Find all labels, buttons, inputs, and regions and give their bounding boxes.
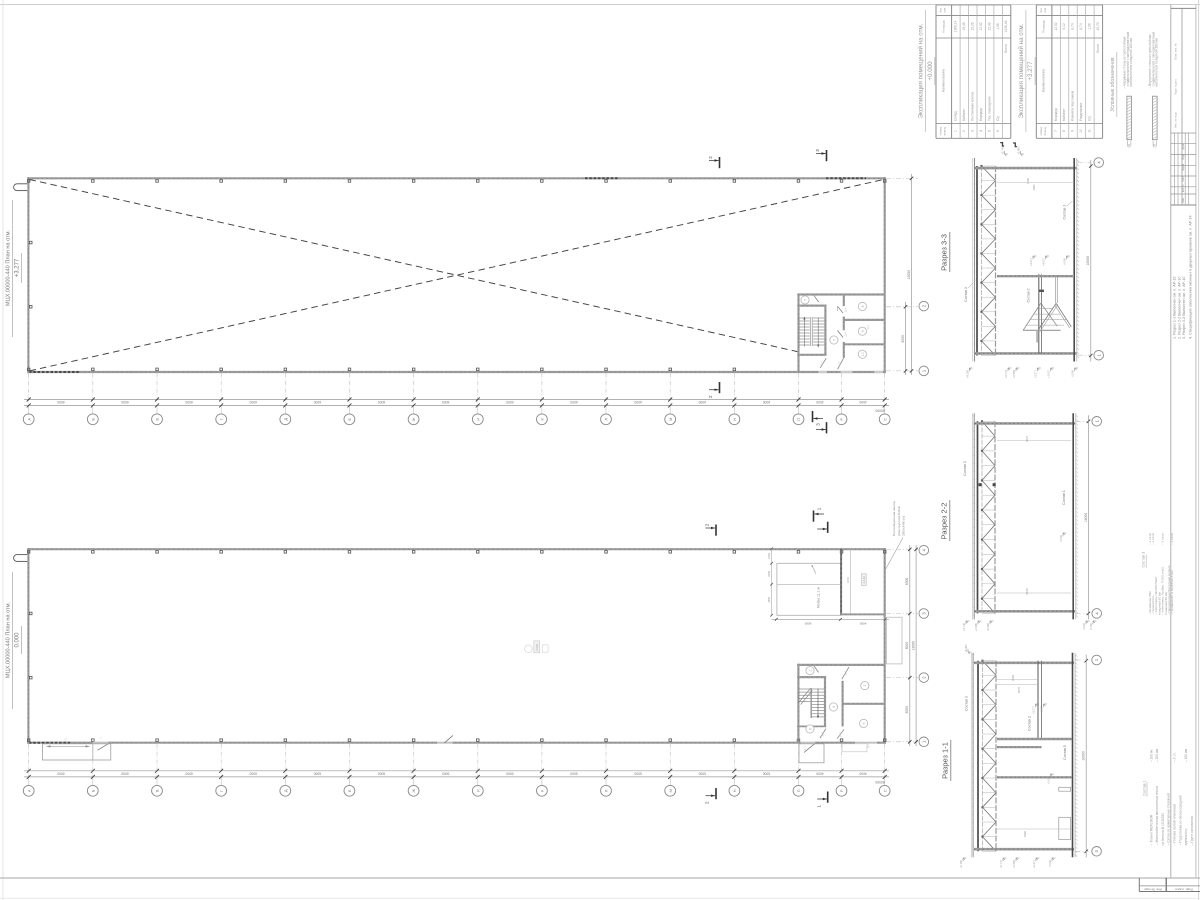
- svg-text:5: 5: [987, 130, 991, 132]
- svg-text:0.000: 0.000: [1048, 859, 1052, 866]
- svg-text:1: 1: [954, 130, 958, 132]
- svg-text:7: 7: [1054, 130, 1058, 132]
- svg-text:Е: Е: [347, 789, 352, 792]
- svg-text:– Железобетонная монолитная пл: – Железобетонная монолитная плита: [1155, 786, 1159, 845]
- svg-text:6000: 6000: [185, 400, 193, 404]
- svg-text:Площадь: Площадь: [1042, 20, 1046, 33]
- svg-text:Мойка 11.1 м: Мойка 11.1 м: [817, 587, 821, 608]
- svg-text:+3.277: +3.277: [1029, 257, 1033, 266]
- svg-text:М: М: [668, 789, 673, 792]
- svg-text:С/у: С/у: [1088, 116, 1092, 121]
- svg-text:1.1.10: 1.1.10: [862, 575, 866, 583]
- svg-text:9: 9: [1071, 130, 1075, 132]
- svg-text:Лист: Лист: [1181, 175, 1185, 181]
- svg-text:А: А: [26, 418, 31, 421]
- svg-text:Б: Б: [90, 418, 95, 421]
- svg-text:Д-3: Д-3: [821, 731, 825, 736]
- svg-text:В: В: [155, 418, 160, 421]
- svg-text:Коридор: Коридор: [1054, 108, 1058, 121]
- svg-text:– Подготовка из песка (средней: – Подготовка из песка (средней: [1178, 795, 1182, 845]
- svg-text:+3.277: +3.277: [1027, 61, 1034, 81]
- svg-text:+1.057: +1.057: [1047, 369, 1051, 378]
- svg-text:Состав 2: Состав 2: [1027, 288, 1031, 302]
- svg-text:9618: 9618: [1025, 588, 1029, 594]
- svg-text:Подп: Подп: [1181, 153, 1185, 160]
- svg-text:6000: 6000: [314, 772, 322, 776]
- svg-text:Е: Е: [347, 418, 352, 421]
- svg-text:18000: 18000: [911, 641, 915, 650]
- svg-text:Подп. и дата: Подп. и дата: [1174, 79, 1178, 95]
- svg-text:18000: 18000: [1086, 256, 1090, 265]
- svg-text:№док: №док: [1182, 163, 1185, 171]
- svg-text:19,49: 19,49: [987, 22, 991, 30]
- svg-text:3564: 3564: [1032, 184, 1036, 190]
- svg-text:– Пленка полиэтиленовая: – Пленка полиэтиленовая: [1173, 804, 1177, 845]
- svg-text:9,12: 9,12: [1062, 23, 1066, 30]
- svg-text:4000: 4000: [859, 622, 866, 626]
- svg-text:8: 8: [861, 305, 865, 307]
- svg-text:+0.000: +0.000: [927, 61, 934, 81]
- svg-text:+3.277: +3.277: [1033, 369, 1037, 378]
- svg-text:100: 100: [1128, 143, 1131, 148]
- svg-text:0.000: 0.000: [15, 632, 21, 648]
- svg-text:0.000: 0.000: [535, 643, 539, 650]
- svg-text:– Профнастил Н 60х845х0,8 мм: – Профнастил Н 60х845х0,8 мм: [1170, 571, 1174, 615]
- svg-text:1. Разрез 1-1 Выполнен см. л.: 1. Разрез 1-1 Выполнен см. л. АР-13: [1173, 277, 1177, 339]
- svg-text:6000: 6000: [804, 622, 811, 626]
- svg-text:Дн-4: Дн-4: [866, 742, 870, 748]
- svg-text:1368,14: 1368,14: [954, 20, 958, 32]
- svg-text:6000: 6000: [121, 400, 129, 404]
- svg-text:Условные обозначения: Условные обозначения: [1110, 57, 1116, 111]
- svg-text:6575: 6575: [1017, 687, 1021, 693]
- svg-text:Д-4: Д-4: [844, 307, 848, 312]
- svg-text:2500х3480 (h): 2500х3480 (h): [902, 516, 906, 536]
- svg-text:М: М: [668, 418, 673, 421]
- svg-text:Склад: Склад: [954, 111, 958, 121]
- svg-text:Р: Р: [839, 789, 844, 792]
- svg-text:3: 3: [863, 685, 867, 687]
- svg-text:10: 10: [1079, 129, 1083, 133]
- svg-text:Ж: Ж: [411, 789, 416, 793]
- svg-text:Наименование: Наименование: [1042, 69, 1046, 93]
- svg-text:19,49: 19,49: [962, 22, 966, 30]
- svg-text:+5.770: +5.770: [999, 859, 1003, 868]
- svg-text:– 1 слой: – 1 слой: [1170, 533, 1174, 545]
- svg-text:Подп. и дата: Подп. и дата: [1175, 887, 1193, 891]
- svg-text:2: 2: [962, 130, 966, 132]
- svg-text:Дата: Дата: [1181, 143, 1185, 149]
- svg-text:6000: 6000: [905, 578, 909, 586]
- svg-text:8: 8: [1062, 130, 1066, 132]
- svg-text:+5.985: +5.985: [1012, 859, 1016, 868]
- svg-text:-0.150: -0.150: [1089, 622, 1093, 630]
- svg-text:– Грунт основания: – Грунт основания: [1190, 816, 1194, 845]
- svg-text:4000: 4000: [816, 772, 824, 776]
- svg-text:6000: 6000: [763, 400, 771, 404]
- svg-text:Инв. № подл.: Инв. № подл.: [1174, 111, 1178, 128]
- svg-text:из бетона В 15 М250: из бетона В 15 М250: [1161, 813, 1165, 846]
- svg-text:4: 4: [832, 706, 836, 708]
- svg-text:В: В: [155, 789, 160, 792]
- svg-text:6000: 6000: [378, 772, 386, 776]
- svg-text:– 200 мм: – 200 мм: [1155, 749, 1159, 762]
- svg-text:2548: 2548: [1011, 675, 1015, 681]
- svg-text:6000: 6000: [442, 400, 450, 404]
- svg-text:Лестничная клетка: Лестничная клетка: [970, 92, 974, 121]
- svg-text:2. Разрез 2-2 Выполнен см. л.: 2. Разрез 2-2 Выполнен см. л. АР-10: [1177, 277, 1181, 339]
- svg-text:9360: 9360: [1023, 831, 1027, 837]
- svg-text:– 200 мк: – 200 мк: [1149, 749, 1153, 762]
- svg-text:Состав 1: Состав 1: [1142, 780, 1146, 796]
- svg-text:6000: 6000: [901, 335, 905, 343]
- svg-text:2850: 2850: [767, 596, 771, 602]
- svg-text:Экспликация помещений на отм.: Экспликация помещений на отм.: [1018, 23, 1025, 118]
- svg-text:7: 7: [803, 299, 807, 301]
- svg-text:+5.770: +5.770: [1004, 369, 1008, 378]
- svg-text:6000: 6000: [185, 772, 193, 776]
- svg-text:6000: 6000: [249, 400, 257, 404]
- svg-text:6000: 6000: [905, 706, 909, 714]
- svg-text:6000: 6000: [698, 400, 706, 404]
- svg-text:3. Разрез 3-3 Выполнен см. л.: 3. Разрез 3-3 Выполнен см. л. АР-10: [1182, 277, 1186, 339]
- svg-text:Коридор: Коридор: [979, 108, 983, 121]
- svg-text:С: С: [882, 418, 887, 421]
- svg-text:наполнителем толщиной 100 мм: наполнителем толщиной 100 мм: [1129, 38, 1133, 86]
- svg-text:6000: 6000: [634, 772, 642, 776]
- svg-text:Инв. № подл.: Инв. № подл.: [1143, 887, 1162, 891]
- svg-text:6000: 6000: [634, 400, 642, 404]
- svg-text:6000: 6000: [378, 400, 386, 404]
- svg-text:6000: 6000: [314, 400, 322, 404]
- svg-text:2: 2: [808, 670, 812, 672]
- svg-text:3: 3: [970, 130, 974, 132]
- svg-text:+1.057: +1.057: [1047, 775, 1051, 784]
- svg-text:Л: Л: [604, 418, 609, 421]
- svg-text:Состав 1: Состав 1: [1062, 490, 1066, 505]
- svg-text:1500: 1500: [767, 553, 771, 559]
- svg-text:5: 5: [862, 722, 866, 724]
- svg-text:6000: 6000: [905, 642, 909, 650]
- svg-text:1,58: 1,58: [996, 23, 1000, 30]
- svg-text:Состав 3: Состав 3: [965, 696, 969, 711]
- svg-text:– Топинг REFLOOR: – Топинг REFLOOR: [1149, 814, 1153, 845]
- svg-text:МЦХ.00000-440 План на отм.: МЦХ.00000-440 План на отм.: [6, 229, 12, 306]
- svg-text:18000: 18000: [1082, 751, 1086, 760]
- svg-text:+0.160: +0.160: [959, 859, 963, 868]
- svg-text:– 3 слоя: – 3 слоя: [1161, 533, 1165, 545]
- svg-text:4000: 4000: [846, 577, 850, 583]
- svg-text:Всего: Всего: [1096, 44, 1100, 53]
- svg-text:Разрез 2-2: Разрез 2-2: [940, 503, 949, 540]
- svg-text:6: 6: [996, 130, 1000, 132]
- svg-text:Кабинет: Кабинет: [1062, 108, 1066, 121]
- svg-text:Состав 5: Состав 5: [1063, 745, 1067, 760]
- svg-text:– 2 сл.: – 2 сл.: [1173, 752, 1177, 762]
- svg-text:Д-2: Д-2: [844, 670, 848, 675]
- svg-text:пом: пом: [944, 8, 947, 13]
- svg-text:Кабинет: Кабинет: [962, 108, 966, 121]
- svg-text:+5.980: +5.980: [1017, 146, 1021, 155]
- svg-text:Комната персонала: Комната персонала: [1071, 91, 1075, 121]
- svg-text:Наименование: Наименование: [941, 69, 945, 93]
- svg-text:6000: 6000: [121, 772, 129, 776]
- svg-text:И: И: [475, 418, 480, 421]
- svg-text:Кол: Кол: [1039, 8, 1043, 13]
- svg-text:МЦХ.00000-440 План на отм.: МЦХ.00000-440 План на отм.: [6, 601, 12, 678]
- svg-text:Д-1: Д-1: [866, 324, 870, 329]
- svg-text:(Конструктив) АЧ61Е: (Конструктив) АЧ61Е: [897, 506, 901, 536]
- svg-text:9: 9: [861, 330, 865, 332]
- svg-text:0.000: 0.000: [1071, 369, 1075, 376]
- svg-text:12,52: 12,52: [1054, 22, 1058, 30]
- svg-text:+4.057: +4.057: [1042, 257, 1046, 266]
- svg-text:Состав 2: Состав 2: [1028, 716, 1032, 731]
- svg-text:Разрез 1-1: Разрез 1-1: [941, 742, 950, 779]
- svg-text:11: 11: [1088, 129, 1092, 133]
- svg-text:Д-4: Д-4: [844, 331, 848, 336]
- svg-text:Всего: Всего: [1004, 44, 1008, 53]
- svg-text:6000: 6000: [698, 772, 706, 776]
- svg-text:Площадь: Площадь: [941, 20, 945, 33]
- svg-text:+5.980: +5.980: [974, 622, 978, 631]
- svg-text:100: 100: [1153, 143, 1156, 148]
- svg-text:крупности): крупности): [1184, 828, 1188, 845]
- svg-text:8,74: 8,74: [1071, 23, 1075, 30]
- svg-text:+5.985: +5.985: [1012, 369, 1016, 378]
- svg-text:Состав 3: Состав 3: [964, 287, 968, 302]
- svg-text:+8.360: +8.360: [964, 644, 968, 653]
- svg-text:18000: 18000: [1084, 513, 1088, 522]
- svg-text:Б: Б: [90, 789, 95, 792]
- svg-text:4000: 4000: [816, 400, 824, 404]
- svg-text:Кол.уч: Кол.уч: [1181, 184, 1185, 192]
- svg-text:1436,48: 1436,48: [1004, 20, 1008, 32]
- svg-text:помещ.: помещ.: [943, 126, 947, 136]
- svg-text:– Сетка из арматурных стержней: – Сетка из арматурных стержней: [1167, 793, 1171, 845]
- svg-text:+3.277: +3.277: [1032, 859, 1036, 868]
- svg-text:80000: 80000: [875, 408, 884, 412]
- svg-text:-1.057: -1.057: [1040, 705, 1044, 713]
- svg-text:П: П: [796, 789, 801, 792]
- svg-text:10: 10: [861, 352, 865, 356]
- svg-text:Н: Н: [732, 418, 737, 421]
- svg-text:6000: 6000: [506, 772, 514, 776]
- svg-text:4. Спецификацию заполнения око: 4. Спецификацию заполнения оконных и две…: [1189, 215, 1193, 339]
- svg-text:0.000: 0.000: [1059, 534, 1063, 541]
- svg-text:0.000: 0.000: [1063, 257, 1067, 264]
- svg-text:С/у: С/у: [996, 116, 1000, 121]
- svg-text:+6.360: +6.360: [986, 622, 990, 631]
- svg-text:4000: 4000: [859, 400, 867, 404]
- svg-text:+3.277: +3.277: [15, 258, 21, 277]
- svg-text:– 1 слой: – 1 слой: [1151, 533, 1155, 545]
- svg-text:15,26: 15,26: [970, 22, 974, 30]
- svg-text:18000: 18000: [907, 270, 911, 279]
- svg-text:6000: 6000: [763, 772, 771, 776]
- svg-text:И: И: [475, 789, 480, 792]
- svg-text:6000: 6000: [249, 772, 257, 776]
- svg-text:80000: 80000: [875, 780, 884, 784]
- svg-text:6000: 6000: [57, 772, 65, 776]
- svg-text:А: А: [26, 789, 31, 792]
- svg-text:2000: 2000: [767, 570, 771, 576]
- svg-text:6221: 6221: [1025, 435, 1029, 441]
- svg-text:помещ.: помещ.: [1043, 126, 1047, 136]
- svg-text:Д-1: Д-1: [803, 746, 807, 751]
- svg-text:6000: 6000: [570, 400, 578, 404]
- svg-text:наполнителем толщиной 100 мм: наполнителем толщиной 100 мм: [1155, 38, 1159, 86]
- svg-text:Состав 3: Состав 3: [1142, 552, 1146, 568]
- svg-text:6000: 6000: [57, 400, 65, 404]
- svg-text:Экспликация помещений на отм.: Экспликация помещений на отм.: [918, 23, 925, 118]
- svg-text:Тех. помещение: Тех. помещение: [987, 96, 991, 121]
- svg-text:Н: Н: [732, 789, 737, 792]
- svg-text:6000: 6000: [570, 772, 578, 776]
- svg-text:Вентиляционная панель: Вентиляционная панель: [892, 500, 896, 536]
- svg-text:Состав 1: Состав 1: [1063, 205, 1067, 220]
- svg-text:Раздевалка: Раздевалка: [1079, 103, 1083, 121]
- svg-text:12,52: 12,52: [979, 22, 983, 30]
- svg-text:7: 7: [832, 339, 836, 341]
- svg-text:Д-6: Д-6: [837, 361, 841, 366]
- svg-text:0.000: 0.000: [1082, 622, 1086, 629]
- svg-text:40,70: 40,70: [1096, 22, 1100, 30]
- svg-text:6000: 6000: [442, 772, 450, 776]
- svg-text:21: 21: [64, 738, 68, 742]
- svg-text:Кол: Кол: [939, 8, 943, 13]
- svg-text:– 200 мм: – 200 мм: [1184, 749, 1188, 762]
- svg-text:Ж: Ж: [411, 417, 416, 421]
- svg-text:Д-2: Д-2: [838, 732, 842, 737]
- svg-text:+3.277: +3.277: [1032, 705, 1036, 714]
- svg-text:4000: 4000: [859, 772, 867, 776]
- svg-text:Р: Р: [839, 418, 844, 421]
- svg-text:1,58: 1,58: [1088, 23, 1092, 30]
- svg-text:Состав 3: Состав 3: [963, 461, 967, 476]
- svg-text:4: 4: [979, 130, 983, 132]
- svg-text:+8.160: +8.160: [965, 369, 969, 378]
- svg-text:6: 6: [808, 728, 812, 730]
- svg-text:пом: пом: [1044, 8, 1047, 13]
- svg-text:Д-5: Д-5: [820, 361, 824, 366]
- svg-text:+5.740: +5.740: [1001, 146, 1005, 155]
- svg-text:Д: Д: [283, 418, 288, 421]
- svg-text:Д: Д: [283, 789, 288, 792]
- svg-text:Изм: Изм: [1181, 198, 1185, 203]
- svg-text:С: С: [882, 789, 887, 792]
- svg-text:2748: 2748: [1026, 178, 1030, 184]
- svg-text:Л: Л: [604, 789, 609, 792]
- svg-text:6000: 6000: [506, 400, 514, 404]
- svg-text:Взам. инв. №: Взам. инв. №: [1174, 43, 1178, 60]
- svg-text:+5.740: +5.740: [962, 622, 966, 631]
- svg-text:П: П: [796, 418, 801, 421]
- svg-text:8,74: 8,74: [1079, 23, 1083, 30]
- svg-text:Разрез 3-3: Разрез 3-3: [940, 234, 949, 271]
